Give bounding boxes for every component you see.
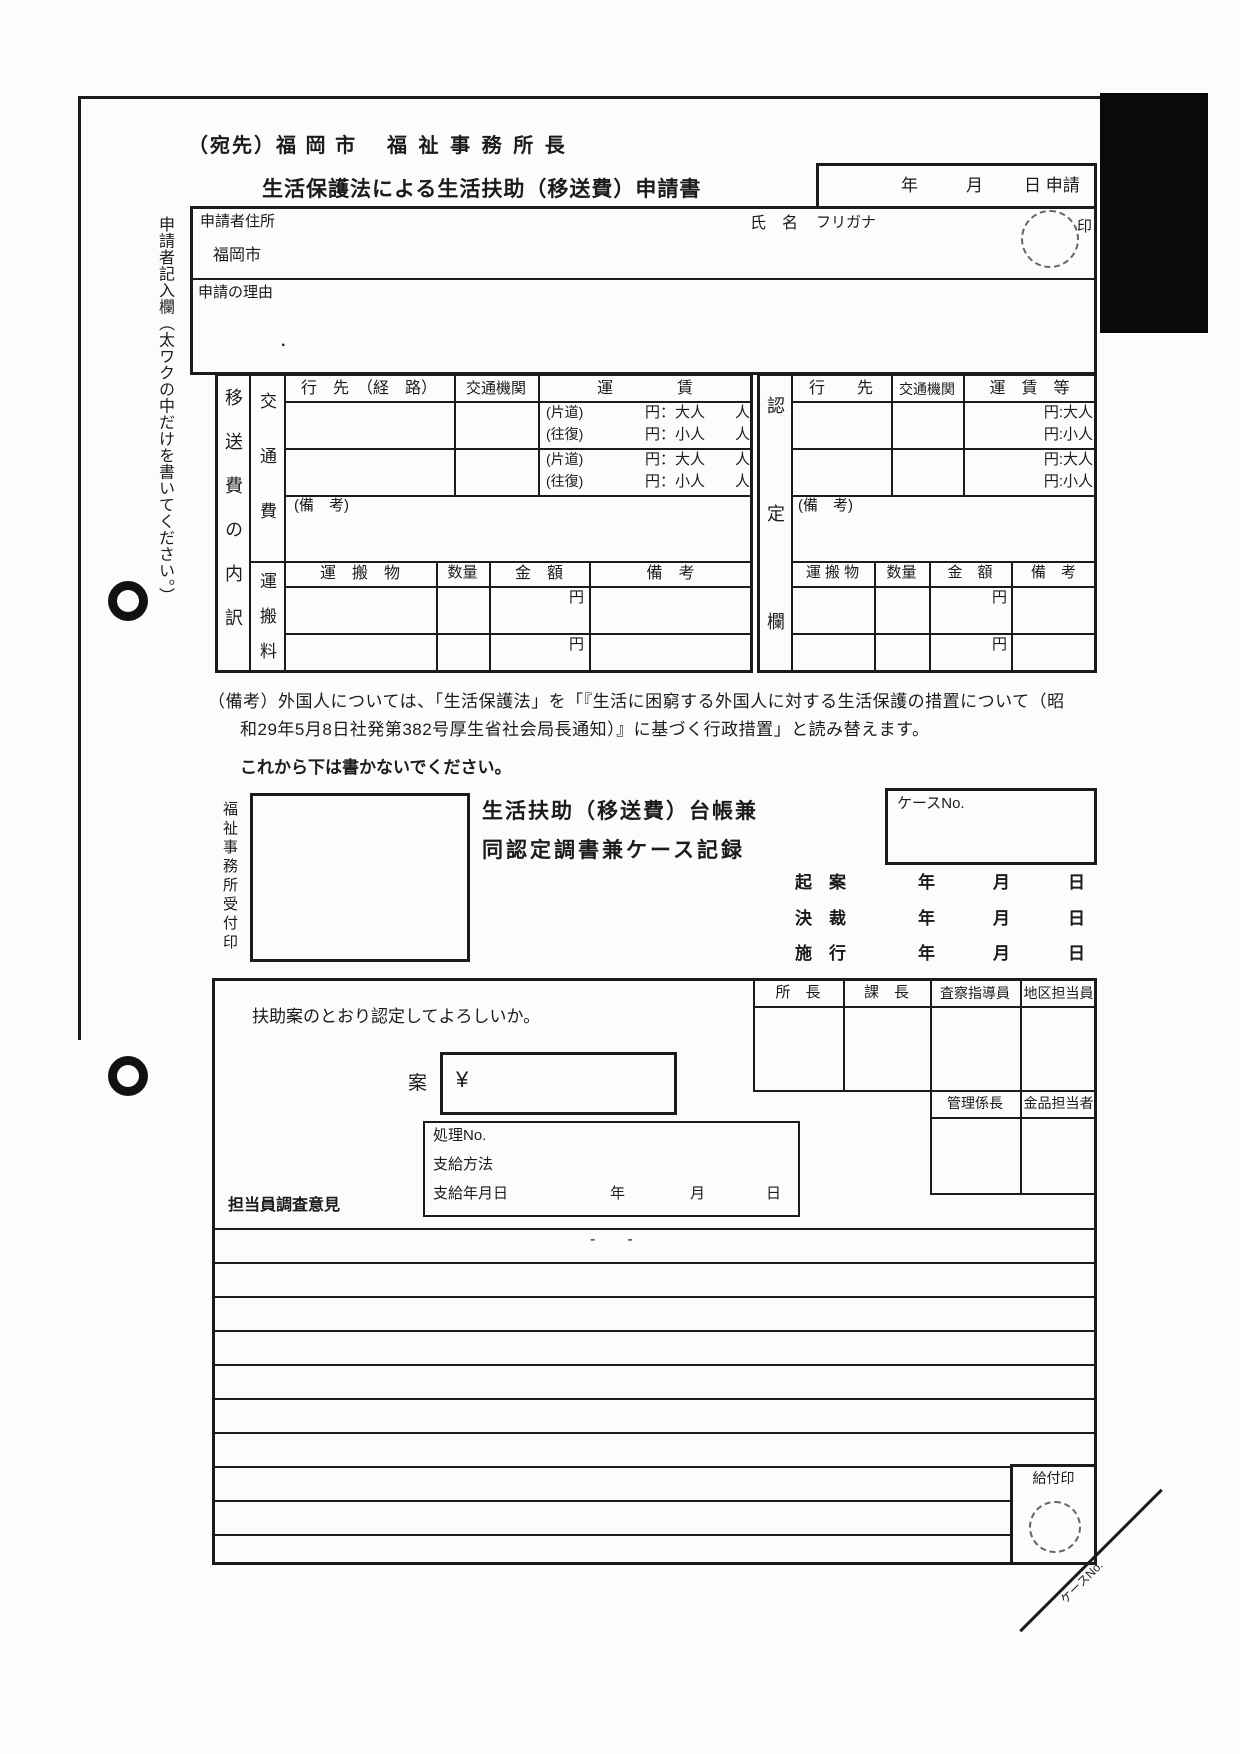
ruled-line-8 xyxy=(214,1466,1095,1468)
cert-label-col-line xyxy=(791,376,793,670)
cert-side-label: 認定欄 xyxy=(766,396,784,666)
enforce-month: 月 xyxy=(993,943,1010,964)
stray-mark: . xyxy=(281,332,285,352)
applicant-furigana-label: フリガナ xyxy=(816,214,876,233)
cert-haul-yen-2: 円 xyxy=(929,636,1007,655)
cert-haul-remarks-header: 備 考 xyxy=(1011,564,1096,583)
ruled-line-5 xyxy=(214,1364,1095,1366)
ruled-line-7 xyxy=(214,1432,1095,1434)
ruled-line-1 xyxy=(214,1228,1095,1230)
cost-row2-line xyxy=(284,495,752,497)
qty-header: 数量 xyxy=(436,564,489,583)
receipt-stamp-box xyxy=(250,793,470,962)
certification-table: 認定欄 行 先 交通機関 運 賃 等 円:大人 円:小人 円:大人 円:小人 (… xyxy=(757,373,1097,673)
ruled-line-3 xyxy=(214,1296,1095,1298)
enforce-day: 日 xyxy=(1068,943,1085,964)
decision-label: 決 裁 xyxy=(795,908,846,929)
fare-child-1: 円：小人 人 xyxy=(540,426,750,445)
cert-fare-adult-1: 円:大人 xyxy=(963,404,1093,423)
chief-header: 所 長 xyxy=(753,984,843,1003)
cert-goods-header: 運 搬 物 xyxy=(791,564,874,583)
haul-row-line xyxy=(284,633,752,635)
footnote-line1: （備考）外国人については、「生活保護法」を「『生活に困窮する外国人に対する生活保… xyxy=(208,691,1065,712)
approval-col-line-4 xyxy=(1020,978,1022,1195)
pay-date-label: 支給年月日 xyxy=(433,1185,508,1204)
do-not-write-notice: これから下は書かないでください。 xyxy=(240,757,512,778)
applicant-address-value: 福岡市 xyxy=(213,246,261,266)
haul-remarks-header: 備 考 xyxy=(589,564,752,584)
section-chief-header: 課 長 xyxy=(843,984,930,1003)
page-border-top xyxy=(78,96,1100,99)
ledger-title-line1: 生活扶助（移送費）台帳兼 xyxy=(482,799,758,825)
applicant-entry-note: 申請者記入欄（太ワクの中だけを書いてください。） xyxy=(156,216,172,608)
date-year-label: 年 xyxy=(901,175,918,196)
draft-label: 起 案 xyxy=(795,872,846,893)
cost-breakdown-table: 移送費の内訳 交通費 運搬料 行 先 （経 路） 交通機関 運 賃 (片道) (… xyxy=(215,373,753,673)
benefit-stamp-label: 給付印 xyxy=(1010,1470,1097,1488)
receipt-stamp-label: 福祉事務所受付印 xyxy=(222,801,237,959)
cert-remarks-label: (備 考) xyxy=(798,497,853,516)
seal-label: 印 xyxy=(1077,218,1092,237)
applicant-box-divider xyxy=(190,278,1097,280)
pay-method-label: 支給方法 xyxy=(433,1156,493,1175)
cert-haul-header-line xyxy=(791,586,1096,588)
addressee-office: 福 祉 事 務 所 長 xyxy=(387,134,568,159)
punch-hole-bottom xyxy=(108,1056,148,1096)
fare-adult-1: 円：大人 人 xyxy=(540,404,750,423)
case-no-label: ケースNo. xyxy=(897,795,965,814)
approval-col-line-3 xyxy=(930,978,932,1195)
fare-child-2: 円：小人 人 xyxy=(540,473,750,492)
cert-haul-row-line xyxy=(791,633,1096,635)
decision-year: 年 xyxy=(918,908,935,929)
cert-fare-adult-2: 円:大人 xyxy=(963,451,1093,470)
scan-black-band xyxy=(1100,93,1208,333)
goods-header: 運 搬 物 xyxy=(284,564,436,584)
amount-header: 金 額 xyxy=(489,564,589,584)
fare-header: 運 賃 xyxy=(538,379,752,399)
draft-day: 日 xyxy=(1068,872,1085,893)
inspector-header: 査察指導員 xyxy=(930,985,1020,1003)
pay-date-day: 日 xyxy=(766,1185,781,1204)
draft-year: 年 xyxy=(918,872,935,893)
yen-sign: ¥ xyxy=(456,1066,468,1094)
cert-amount-header: 金 額 xyxy=(929,564,1011,583)
process-no-label: 処理No. xyxy=(433,1127,486,1146)
ruled-line-2 xyxy=(214,1262,1095,1264)
transport-row-label: 交通費 xyxy=(258,392,275,560)
date-month-label: 月 xyxy=(966,175,983,196)
page-border-left xyxy=(78,96,81,1040)
enforce-year: 年 xyxy=(918,943,935,964)
decision-day: 日 xyxy=(1068,908,1085,929)
enforce-label: 施 行 xyxy=(795,943,846,964)
opinion-label: 担当員調査意見 xyxy=(228,1196,340,1216)
benefit-stamp-circle xyxy=(1029,1501,1081,1553)
approval-header-line xyxy=(753,1006,1097,1008)
sub-approval-header-line xyxy=(930,1117,1097,1119)
carrier-header: 交通機関 xyxy=(454,380,538,399)
cost-remarks-label: (備 考) xyxy=(294,497,349,516)
plan-label: 案 xyxy=(408,1072,427,1096)
cert-fare-child-1: 円:小人 xyxy=(963,426,1093,445)
footnote-line2: 和29年5月8日社発第382号厚生省社会局長通知）』に基づく行政措置」と読み替え… xyxy=(240,719,929,740)
goods-officer-header: 金品担当者 xyxy=(1020,1095,1097,1113)
cert-qty-header: 数量 xyxy=(874,564,929,583)
pay-date-month: 月 xyxy=(690,1185,705,1204)
decision-month: 月 xyxy=(993,908,1010,929)
approval-bottom-line xyxy=(753,1090,1097,1092)
haul-yen-1: 円 xyxy=(489,589,584,608)
haulage-row-label: 運搬料 xyxy=(258,572,275,668)
fare-adult-2: 円：大人 人 xyxy=(540,451,750,470)
admin-chief-header: 管理係長 xyxy=(930,1095,1020,1113)
pay-date-year: 年 xyxy=(610,1185,625,1204)
cost-col-line-1 xyxy=(249,376,251,670)
cert-fare-header: 運 賃 等 xyxy=(963,379,1096,399)
seal-circle xyxy=(1021,210,1079,268)
sub-approval-bottom-line xyxy=(930,1193,1097,1195)
draft-month: 月 xyxy=(993,872,1010,893)
addressee-city: （宛先）福 岡 市 xyxy=(188,134,357,159)
cert-carrier-header: 交通機関 xyxy=(891,381,963,399)
cost-header-line xyxy=(284,401,752,403)
punch-hole-top xyxy=(108,581,148,621)
cert-haul-yen-1: 円 xyxy=(929,589,1007,608)
haul-yen-2: 円 xyxy=(489,636,584,655)
cert-remarks-line xyxy=(791,561,1096,563)
applicant-address-label: 申請者住所 xyxy=(200,213,275,232)
ruled-line-4 xyxy=(214,1330,1095,1332)
cost-remarks-line xyxy=(249,561,752,563)
applicant-name-label: 氏 名 xyxy=(750,214,798,234)
punch-hole-top-center xyxy=(117,590,139,612)
cert-row1-line xyxy=(791,448,1096,450)
cert-header-line xyxy=(791,401,1096,403)
haul-header-line xyxy=(284,586,752,588)
plan-amount-box xyxy=(440,1052,677,1115)
cert-fare-child-2: 円:小人 xyxy=(963,473,1093,492)
district-officer-header: 地区担当員 xyxy=(1020,985,1097,1003)
handwritten-dashes: - - xyxy=(590,1230,633,1250)
cost-col-line-2 xyxy=(284,376,286,670)
cert-destination-header: 行 先 xyxy=(791,379,891,399)
form-title: 生活保護法による生活扶助（移送費）申請書 xyxy=(262,177,701,203)
scanned-application-form: （宛先）福 岡 市 福 祉 事 務 所 長 生活保護法による生活扶助（移送費）申… xyxy=(0,0,1240,1754)
ruled-line-9 xyxy=(214,1500,1095,1502)
applicant-box xyxy=(190,206,1097,375)
ruled-line-10 xyxy=(214,1534,1095,1536)
punch-hole-bottom-center xyxy=(117,1065,139,1087)
destination-header: 行 先 （経 路） xyxy=(284,379,454,399)
application-reason-label: 申請の理由 xyxy=(198,284,273,303)
approval-question: 扶助案のとおり認定してよろしいか。 xyxy=(252,1006,540,1027)
ruled-line-6 xyxy=(214,1398,1095,1400)
ledger-title-line2: 同認定調書兼ケース記録 xyxy=(482,838,745,864)
date-day-apply-label: 日 申請 xyxy=(1024,175,1080,196)
cost-side-label: 移送費の内訳 xyxy=(224,388,242,668)
cost-row1-line xyxy=(284,448,752,450)
